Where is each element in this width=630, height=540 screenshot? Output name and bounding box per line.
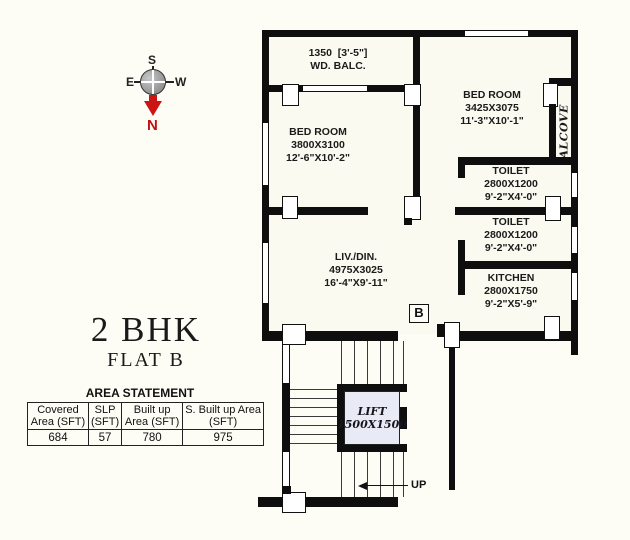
up-label: UP [411,479,426,491]
door-toilet [545,196,561,221]
label-toilet2: TOILET 2800X1200 9'-2"X4'-0" [484,216,538,255]
window-stairwell-lower [282,452,290,490]
door-bedroom1 [282,196,298,219]
lift-notch-top [400,392,407,407]
wall-stairwell-bottom [258,497,398,507]
compass-stem-west [165,81,174,83]
floor-plan: LIFT 1500X1500 UP B 1350 [3'-5"] WD. BAL… [0,0,630,540]
window-balcony-rail [303,85,367,92]
stair-tread [290,416,337,417]
window-left-2 [262,243,269,303]
stair-tread [290,407,337,408]
flat-marker-b: B [409,304,429,323]
stair-line [341,452,342,497]
wall-bedroom1-bottom [262,207,368,215]
stair-line [367,452,368,497]
label-bedroom2: BED ROOM 3425X3075 11'-3"X10'-1" [460,89,523,128]
hinge-alcove [549,104,556,111]
label-balcony: 1350 [3'-5"] WD. BALC. [309,47,368,73]
lift-cab: LIFT 1500X1500 [344,391,400,445]
lift-size: 1500X1500 [337,418,407,431]
wall-toilet-top-stub [458,157,465,178]
stair-line [354,452,355,497]
compass-west-label: W [175,75,186,89]
stair-tread [290,434,337,435]
compass-cross-vertical [152,70,154,94]
stair-line [367,341,368,384]
stair-tread [290,398,337,399]
stair-line [341,341,342,384]
compass-south-label: S [148,53,156,67]
window-right-toilet2 [571,227,578,253]
stair-line [380,452,381,497]
up-arrow-line [366,485,408,486]
wall-top [262,30,578,37]
stair-line [354,341,355,384]
wall-corridor-right [449,347,455,490]
door-bedroom2 [404,84,421,106]
door-living-bottom [282,324,306,345]
door-stairwell-bottom [282,492,306,513]
door-balcony [282,84,299,106]
hinge-entrance [437,324,445,337]
stair-tread [290,443,337,444]
wall-kitchen-stub-above [458,240,465,261]
stair-line [403,452,404,497]
wall-kitchen-stub-below [458,269,465,295]
lift-notch-bottom [400,429,407,444]
label-toilet1: TOILET 2800X1200 9'-2"X4'-0" [484,165,538,204]
door-central-lower [404,196,421,220]
wall-kitchen-top [458,261,578,269]
label-bedroom1: BED ROOM 3800X3100 12'-6"X10'-2" [286,126,350,165]
wall-central-mid [413,105,420,197]
hinge-central-lower [404,218,412,225]
stair-line [403,341,404,384]
wall-alcove-left [549,107,556,157]
window-right-kitchen [571,273,578,300]
window-top-bedroom2 [465,30,528,37]
window-left-1 [262,123,269,185]
compass-north-label: N [147,117,158,134]
label-alcove: ALCOVE [558,103,571,159]
stair-line [380,341,381,384]
stair-tread [290,389,337,390]
hinge-stairwell [282,486,291,494]
label-living: LIV./DIN. 4975X3025 16'-4"X9'-11" [324,251,387,290]
window-right-toilet1 [571,173,578,197]
lift-label: LIFT [358,405,387,418]
door-kitchen [544,316,560,340]
wall-central-upper [413,30,420,85]
stair-line [393,341,394,384]
stair-tread [290,425,337,426]
stair-line [393,452,394,497]
compass-east-label: E [126,75,134,89]
north-arrow-icon [144,101,162,116]
label-kitchen: KITCHEN 2800X1750 9'-2"X5'-9" [484,272,538,311]
door-entrance [444,322,460,348]
window-stairwell-upper [282,345,290,383]
